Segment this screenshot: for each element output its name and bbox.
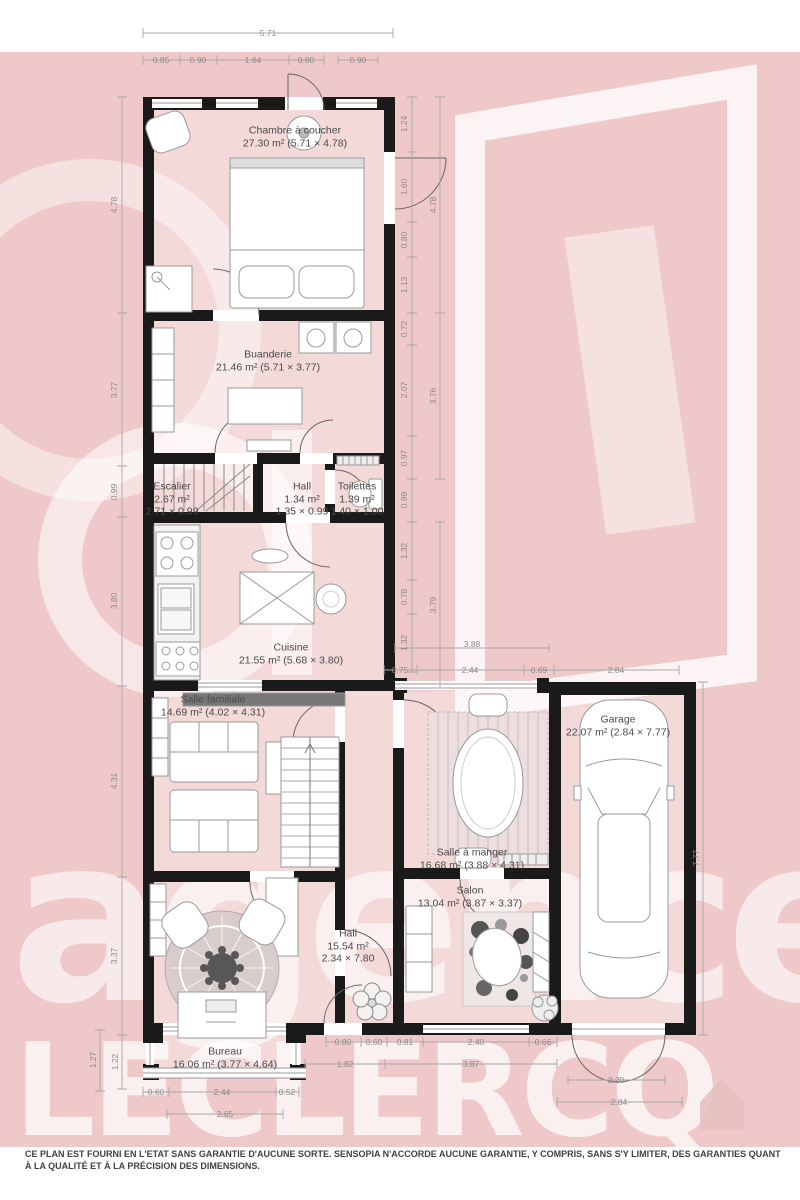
dim-top_a: 0.85 — [153, 55, 170, 65]
dim-left_7: 1.27 — [88, 1052, 98, 1069]
room-label-cuisine: Cuisine21.55 m² (5.68 × 3.80) — [239, 642, 343, 667]
room-label-salle-familiale: Salle familiale14.69 m² (4.02 × 4.31) — [161, 694, 265, 719]
dim-bot_b: 0.60 — [366, 1037, 383, 1047]
staircase-hall — [281, 737, 339, 867]
salon-bench — [533, 912, 549, 992]
room-label-escalier: Escalier2.67 m²2.71 × 0.99 — [146, 480, 199, 518]
dim-mid_d: 2.84 — [608, 665, 625, 675]
dim-left_2: 3.77 — [109, 382, 119, 399]
dim-gar_a: 2.20 — [608, 1075, 625, 1085]
dim-left_6: 3.37 — [109, 948, 119, 965]
radiator — [337, 456, 379, 465]
room-label-bureau: Bureau16.06 m² (3.77 × 4.64) — [173, 1046, 277, 1071]
dim-right_b: 1.60 — [399, 179, 409, 196]
dim-gar_b: 2.84 — [611, 1097, 628, 1107]
dim-mid_a: 0.75 — [392, 665, 409, 675]
dim-bot_f: 1.82 — [337, 1059, 354, 1069]
dim-bur_c: 0.52 — [279, 1087, 296, 1097]
dim-left_1: 4.78 — [109, 197, 119, 214]
bed — [230, 158, 364, 308]
dim-left_3: 0.99 — [109, 484, 119, 501]
dim-right_l: 0.78 — [399, 589, 409, 606]
dim-right_m: 1.32 — [399, 635, 409, 652]
room-label-garage: Garage22.07 m² (2.84 × 7.77) — [566, 714, 670, 739]
dim-top_d: 0.80 — [298, 55, 315, 65]
room-label-toilettes: Toilettes1.39 m²1.40 × 1.00 — [331, 480, 384, 518]
dim-top_e: 0.90 — [350, 55, 367, 65]
salon-plant — [532, 995, 558, 1021]
bureau-desk — [178, 992, 266, 1038]
dim-bur_d: 2.65 — [217, 1109, 234, 1119]
dim-right_h: 0.97 — [399, 450, 409, 467]
room-label-buanderie: Buanderie21.46 m² (5.71 × 3.77) — [216, 349, 320, 374]
laundry-table — [228, 388, 302, 424]
dim-left_8: 1.22 — [110, 1054, 120, 1071]
dim-bot_d: 2.40 — [468, 1037, 485, 1047]
room-label-salle-a-manger: Salle à manger16.68 m² (3.88 × 4.31) — [420, 847, 524, 872]
dim-mid_c: 0.69 — [531, 665, 548, 675]
salon-shelf — [406, 906, 432, 992]
dim-garage_h: 7.77 — [691, 850, 701, 867]
room-label-chambre: Chambre à coucher27.30 m² (5.71 × 4.78) — [243, 125, 347, 150]
dim-top_b: 0.90 — [190, 55, 207, 65]
dim-right_g: 2.07 — [399, 382, 409, 399]
dim-top_total: 5.71 — [260, 28, 277, 38]
room-label-hall-petit: Hall1.34 m²1.35 × 0.99 — [276, 480, 329, 518]
ironing-board — [247, 440, 291, 451]
shower — [146, 266, 192, 312]
floor-plan-page: agence LECLERCQ — [0, 0, 800, 1200]
dim-bot_a: 0.80 — [335, 1037, 352, 1047]
dim-right_c: 0.80 — [399, 232, 409, 249]
dim-bot_c: 0.81 — [397, 1037, 414, 1047]
dim-bur_b: 2.44 — [214, 1087, 231, 1097]
dim-bur_a: 0.60 — [148, 1087, 165, 1097]
disclaimer-text: CE PLAN EST FOURNI EN L'ETAT SANS GARANT… — [25, 1149, 783, 1172]
dim-right_i: 3.76 — [428, 388, 438, 405]
dining-set — [428, 694, 548, 868]
dim-right_a: 1.24 — [399, 116, 409, 133]
salon-rug — [463, 912, 535, 1006]
laundry-shelf — [152, 328, 174, 432]
dim-right_j: 0.99 — [399, 492, 409, 509]
dim-left_5: 4.31 — [109, 773, 119, 790]
dim-right_f: 0.72 — [399, 321, 409, 338]
dim-right_d: 1.13 — [399, 277, 409, 294]
dim-top_c: 1.64 — [245, 55, 262, 65]
car — [574, 700, 674, 998]
dim-right_n: 3.79 — [428, 597, 438, 614]
dim-bot_e: 0.66 — [535, 1037, 552, 1047]
dim-mid_b: 2.44 — [462, 665, 479, 675]
kitchen-counter — [154, 525, 200, 680]
dim-mid_total: 3.88 — [464, 639, 481, 649]
room-label-hall-grand: Hall15.54 m²2.34 × 7.80 — [322, 927, 375, 965]
dim-right_e: 4.78 — [428, 197, 438, 214]
dim-right_k: 1.32 — [399, 543, 409, 560]
room-label-salon: Salon13.04 m² (3.87 × 3.37) — [418, 885, 522, 910]
dim-bot_g: 3.87 — [463, 1059, 480, 1069]
dim-left_4: 3.80 — [109, 593, 119, 610]
